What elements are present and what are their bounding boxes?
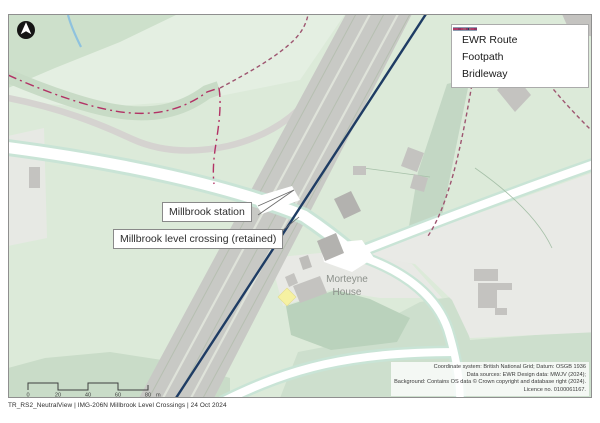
scale-tick-20: 20	[55, 393, 61, 398]
svg-text:Morteyne: Morteyne	[326, 274, 368, 285]
legend-item-bridleway: Bridleway	[462, 65, 588, 82]
attribution-line-3: Background: Contains OS data © Crown cop…	[394, 379, 586, 387]
attribution-line-4: Licence no. 0100061167.	[394, 387, 586, 395]
legend: EWR Route Footpath Bridleway	[451, 24, 589, 88]
scale-tick-80: 80	[145, 393, 151, 398]
map-frame: Morteyne House 0 20 40 60 80 m	[8, 14, 592, 398]
legend-item-ewr-route: EWR Route	[462, 31, 588, 48]
footpath-far-east	[549, 84, 591, 138]
svg-text:House: House	[333, 287, 362, 298]
legend-label-bridleway: Bridleway	[462, 68, 508, 80]
station-callout: Millbrook station	[162, 202, 252, 222]
station-callout-label: Millbrook station	[169, 206, 245, 218]
level-crossing-callout-label: Millbrook level crossing (retained)	[120, 233, 276, 245]
map-caption: TR_RS2_NeutralView | IMG-206N Millbrook …	[8, 402, 227, 409]
legend-label-ewr-route: EWR Route	[462, 34, 517, 46]
scale-tick-40: 40	[85, 393, 91, 398]
scale-tick-0: 0	[26, 393, 29, 398]
attribution-line-1: Coordinate system: British National Grid…	[394, 364, 586, 372]
scale-unit: m	[156, 393, 161, 398]
legend-label-footpath: Footpath	[462, 51, 503, 63]
legend-item-footpath: Footpath	[462, 48, 588, 65]
level-crossing-callout: Millbrook level crossing (retained)	[113, 229, 283, 249]
bridleway-swatch-icon	[452, 25, 478, 33]
bridleway-branch	[213, 88, 220, 184]
map-page: Morteyne House 0 20 40 60 80 m	[0, 0, 600, 423]
scale-tick-60: 60	[115, 393, 121, 398]
north-arrow-icon	[17, 21, 35, 39]
attribution: Coordinate system: British National Grid…	[391, 362, 589, 396]
